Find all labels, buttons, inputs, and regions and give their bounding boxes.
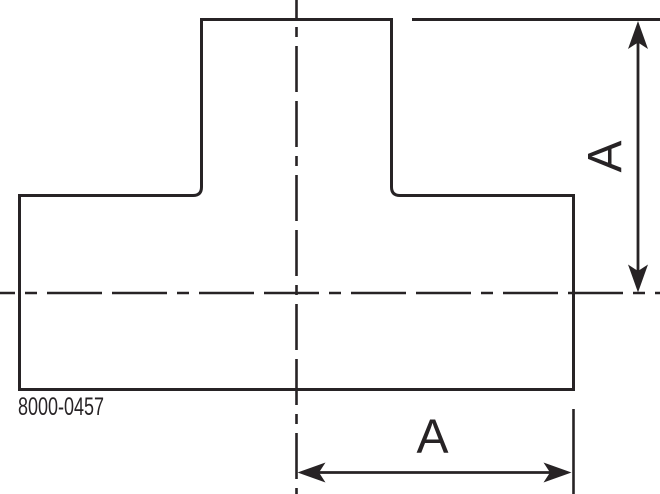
technical-drawing-page: A A 8000-0457 bbox=[0, 0, 660, 494]
part-number-label: 8000-0457 bbox=[18, 392, 104, 421]
tee-fitting-drawing: A A 8000-0457 bbox=[0, 0, 660, 494]
horizontal-dimension: A bbox=[298, 411, 572, 483]
vertical-dimension: A bbox=[579, 21, 648, 293]
dimension-a-horizontal-label: A bbox=[416, 411, 448, 464]
dimension-a-vertical-label: A bbox=[579, 140, 632, 172]
